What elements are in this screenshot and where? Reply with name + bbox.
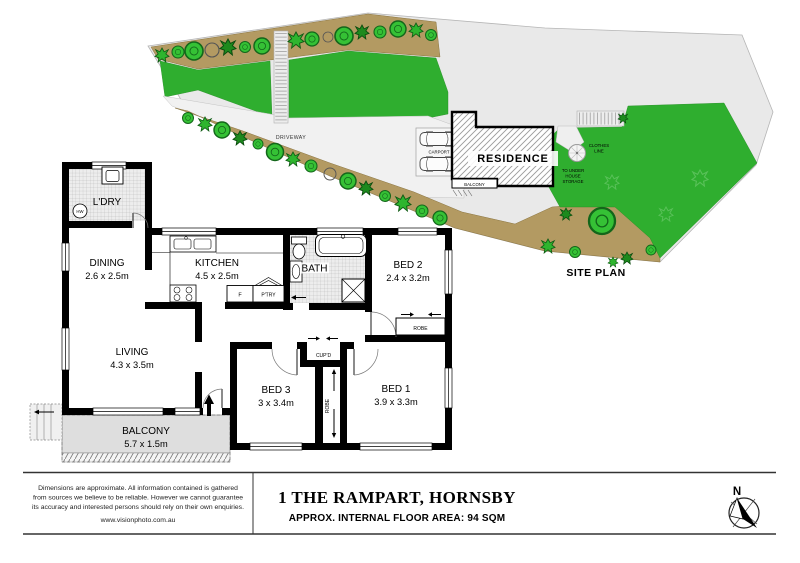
bed3-dims: 3 x 3.4m bbox=[258, 398, 294, 408]
driveway-label: DRIVEWAY bbox=[276, 135, 306, 141]
site-plan-title: SITE PLAN bbox=[566, 267, 625, 279]
carport-label: CARPORT bbox=[429, 150, 450, 155]
residence-label: RESIDENCE bbox=[477, 153, 548, 165]
living-label: LIVING bbox=[116, 347, 149, 358]
floor-plan: HW F bbox=[30, 162, 452, 462]
storage-label: TO UNDER bbox=[562, 168, 584, 173]
cupboard-label: CUP'D bbox=[316, 353, 332, 359]
laundry-tub-icon bbox=[102, 167, 123, 184]
bed1-dims: 3.9 x 3.3m bbox=[374, 397, 418, 407]
footer: Dimensions are approximate. All informat… bbox=[23, 473, 776, 535]
dining-label: DINING bbox=[90, 258, 125, 269]
svg-text:P'TRY: P'TRY bbox=[261, 293, 276, 299]
laundry-label: L'DRY bbox=[93, 197, 122, 208]
site-lawn-upper-right bbox=[289, 51, 448, 119]
side-steps bbox=[30, 404, 62, 440]
property-address: 1 THE RAMPART, HORNSBY bbox=[278, 488, 516, 507]
clothes-line-icon bbox=[569, 145, 586, 162]
bed3-label: BED 3 bbox=[262, 385, 291, 396]
disclaimer-line: from sources we believe to be reliable. … bbox=[33, 495, 243, 502]
sink-icon bbox=[170, 236, 216, 252]
disclaimer-line: its accuracy and interested persons shou… bbox=[32, 504, 244, 511]
site-plan: CLOTHES LINE TO UNDER HOUSE STORAGE CARP… bbox=[148, 13, 773, 330]
site-steps-path bbox=[274, 31, 288, 123]
clothes-line-label2: LINE bbox=[594, 149, 604, 154]
bed2-label: BED 2 bbox=[394, 260, 423, 271]
kitchen-label: KITCHEN bbox=[195, 258, 239, 269]
toilet-icon bbox=[292, 237, 307, 259]
floorplan-page: CLOTHES LINE TO UNDER HOUSE STORAGE CARP… bbox=[0, 0, 800, 563]
stove-icon bbox=[170, 285, 196, 302]
entry-arrow-icon bbox=[204, 395, 214, 417]
hot-water-icon: HW bbox=[73, 204, 87, 218]
dining-dims: 2.6 x 2.5m bbox=[85, 271, 129, 281]
disclaimer-line: Dimensions are approximate. All informat… bbox=[38, 485, 238, 492]
bathtub-icon bbox=[316, 235, 367, 257]
balcony-dims: 5.7 x 1.5m bbox=[124, 439, 168, 449]
website-link: www.visionphoto.com.au bbox=[100, 517, 176, 524]
kitchen-dims: 4.5 x 2.5m bbox=[195, 271, 239, 281]
svg-text:HW: HW bbox=[76, 209, 84, 214]
fridge-icon: F bbox=[227, 286, 253, 303]
svg-text:ROBE: ROBE bbox=[413, 326, 428, 332]
compass-n-label: N bbox=[733, 486, 741, 498]
compass-icon: N bbox=[729, 486, 759, 528]
living-dims: 4.3 x 3.5m bbox=[110, 360, 154, 370]
bath-label: BATH bbox=[302, 264, 328, 275]
site-balcony-label: BALCONY bbox=[464, 182, 485, 187]
robe-hall-label: ROBE bbox=[325, 398, 331, 413]
bed1-label: BED 1 bbox=[382, 384, 411, 395]
kitchen-fixtures: F P'TRY bbox=[152, 236, 284, 302]
storage-label2: HOUSE bbox=[565, 174, 580, 179]
floorplan-canvas: CLOTHES LINE TO UNDER HOUSE STORAGE CARP… bbox=[0, 0, 800, 563]
clothes-line-label: CLOTHES bbox=[589, 143, 609, 148]
storage-label3: STORAGE bbox=[563, 179, 584, 184]
pantry-icon: P'TRY bbox=[253, 278, 284, 303]
floor-area: APPROX. INTERNAL FLOOR AREA: 94 SQM bbox=[289, 513, 505, 524]
balcony-label: BALCONY bbox=[122, 426, 170, 437]
robe-bed2: ROBE bbox=[396, 318, 445, 335]
shower-icon bbox=[342, 279, 365, 302]
bed2-dims: 2.4 x 3.2m bbox=[386, 273, 430, 283]
